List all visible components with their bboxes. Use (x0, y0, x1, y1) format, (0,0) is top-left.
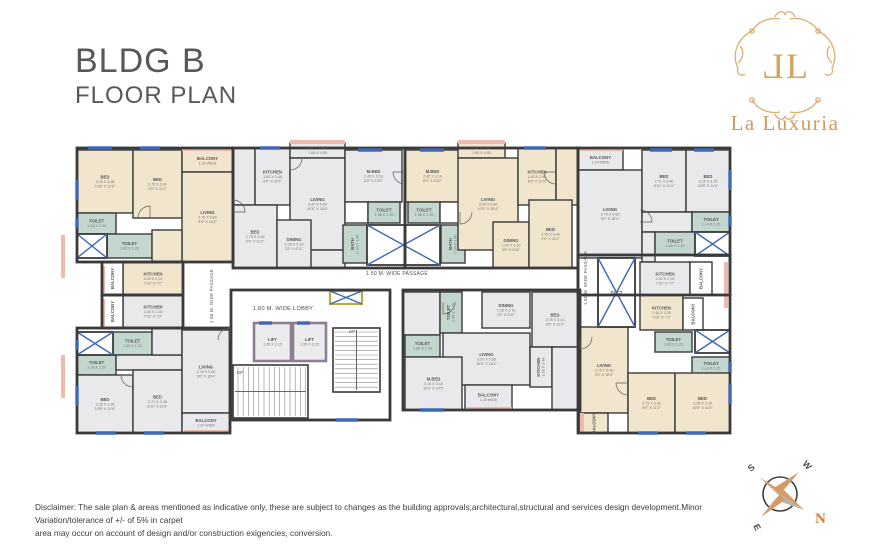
title-block: BLDG B FLOOR PLAN (75, 44, 237, 110)
brand-logo: L L La Luxuria (700, 8, 870, 136)
room-label: LIVING2.75 X 5.609'0" X 18'4" (197, 364, 217, 378)
room-label: TOILET1.36 X 2.20 (375, 208, 394, 218)
room-label: TOILET1.85 X 1.20 (664, 337, 683, 347)
room-area (403, 292, 440, 335)
passage-label-vertical: 1.50 M. WIDE PASSAGE (209, 269, 214, 323)
stairs-up-label: UP (237, 370, 244, 375)
room-area (152, 230, 182, 262)
room-label: BALCONY (698, 268, 703, 289)
room-label: KITCHEN1.83 X 3.48 (536, 357, 546, 376)
room-label: BALCONY1.24 WIDE (590, 155, 611, 165)
floor-plan-drawing: BED3.25 X 3.3510'8" X 11'0"BED2.75 X 3.4… (55, 135, 740, 475)
room-label: TOILET1.36 X 2.20 (446, 303, 456, 322)
room-label: TOILET1.85 X 1.20 (413, 341, 432, 351)
logo-ornament-icon (735, 12, 834, 119)
disclaimer-line2: area may occur on account of design and/… (35, 527, 745, 540)
stairs-up-label: UP (349, 329, 356, 334)
room-label: BALCONY1.20 WIDE (478, 393, 499, 403)
room-label: TOILET1.14 X 2.20 (702, 217, 721, 227)
lobby-label: 1.80 M. WIDE LOBBY (253, 306, 313, 312)
disclaimer-line1: Disclaimer: The sale plan & areas mentio… (35, 501, 745, 527)
room-label: TOILET1.85 X 1.20 (666, 239, 685, 249)
room-label: BALCONY1.20 WIDE (195, 418, 216, 428)
room-area (345, 202, 368, 223)
room-label: BALCONY (110, 268, 115, 289)
disclaimer: Disclaimer: The sale plan & areas mentio… (35, 501, 745, 540)
room-label: TOILET1.85 X 1.20 (123, 339, 142, 349)
logo-monogram-right: L (786, 46, 808, 86)
room-label: LIVING2.75 X 5.609'0" X 18'4" (595, 363, 615, 377)
brand-name: La Luxuria (731, 111, 840, 135)
room-label: TOILET1.14 X 2.20 (87, 219, 106, 229)
floor-plan-page: { "title": {"line1": "BLDG B", "line2": … (0, 0, 883, 550)
page-subtitle: FLOOR PLAN (75, 82, 237, 110)
room-label: BALCONY1.06 X 4.05 (307, 146, 328, 156)
room-label: DINING1.05 X 2.103'5" X 6'11" (502, 238, 521, 252)
room-label: DINING1.05 X 2.103'5" X 6'11" (285, 237, 304, 251)
room-label: BALCONY1.20 WIDE (197, 156, 218, 166)
room-label: KITCHEN2.40 X 2.207'10" X 7'2" (143, 271, 163, 285)
room-label: TOILET1.14 X 2.20 (702, 361, 721, 371)
compass-north-label: N (815, 511, 826, 527)
compass-south-label: S (746, 462, 757, 473)
room-label: LIVING2.75 X 5.609'0" X 18'4" (198, 210, 218, 224)
room-label: BALCONY (110, 301, 115, 322)
room-label: KITCHEN1.83 X 3.486'0" X 11'5" (263, 169, 283, 183)
room-label: KITCHEN2.40 X 2.207'10" X 7'2" (143, 304, 163, 318)
room-label: TOILET1.14 X 2.20 (87, 360, 106, 370)
passage-label: 1.50 M. WIDE PASSAGE (366, 271, 428, 277)
room-label: KITCHEN1.83 X 3.486'0" X 11'5" (527, 169, 547, 183)
compass-west-label: W (801, 459, 814, 472)
logo-monogram-left: L (762, 46, 784, 86)
passage-label-vertical: 1.50 M. WIDE PASSAGE (583, 251, 588, 305)
compass-rose: N W S E (722, 438, 840, 548)
logo-monogram: L L (762, 46, 808, 86)
room-label: BALCONY1.06 X 4.05 (471, 146, 492, 156)
room-label: TOILET1.85 X 1.20 (120, 241, 139, 251)
room-label: KITCHEN2.40 X 2.207'10" X 7'2" (652, 305, 672, 319)
room-label: BALCONY (690, 303, 695, 324)
room-area (552, 347, 578, 410)
room-area (116, 355, 182, 370)
room-area (152, 328, 182, 355)
room-label: TOILET1.36 X 2.20 (415, 208, 434, 218)
room-label: KITCHEN2.40 X 2.207'10" X 7'2" (655, 271, 675, 285)
room-area (233, 148, 255, 205)
room-label: DUCT (611, 290, 623, 295)
room-area (556, 148, 578, 205)
room-label: LIVING2.75 X 5.609'0" X 18'4" (601, 207, 621, 221)
room-label: BALCONY (591, 412, 596, 433)
room-label: DINING1.05 X 2.103'5" X 6'11" (497, 303, 516, 317)
compass-east-label: E (751, 522, 763, 532)
page-title: BLDG B (75, 44, 237, 80)
room-area (642, 232, 655, 262)
